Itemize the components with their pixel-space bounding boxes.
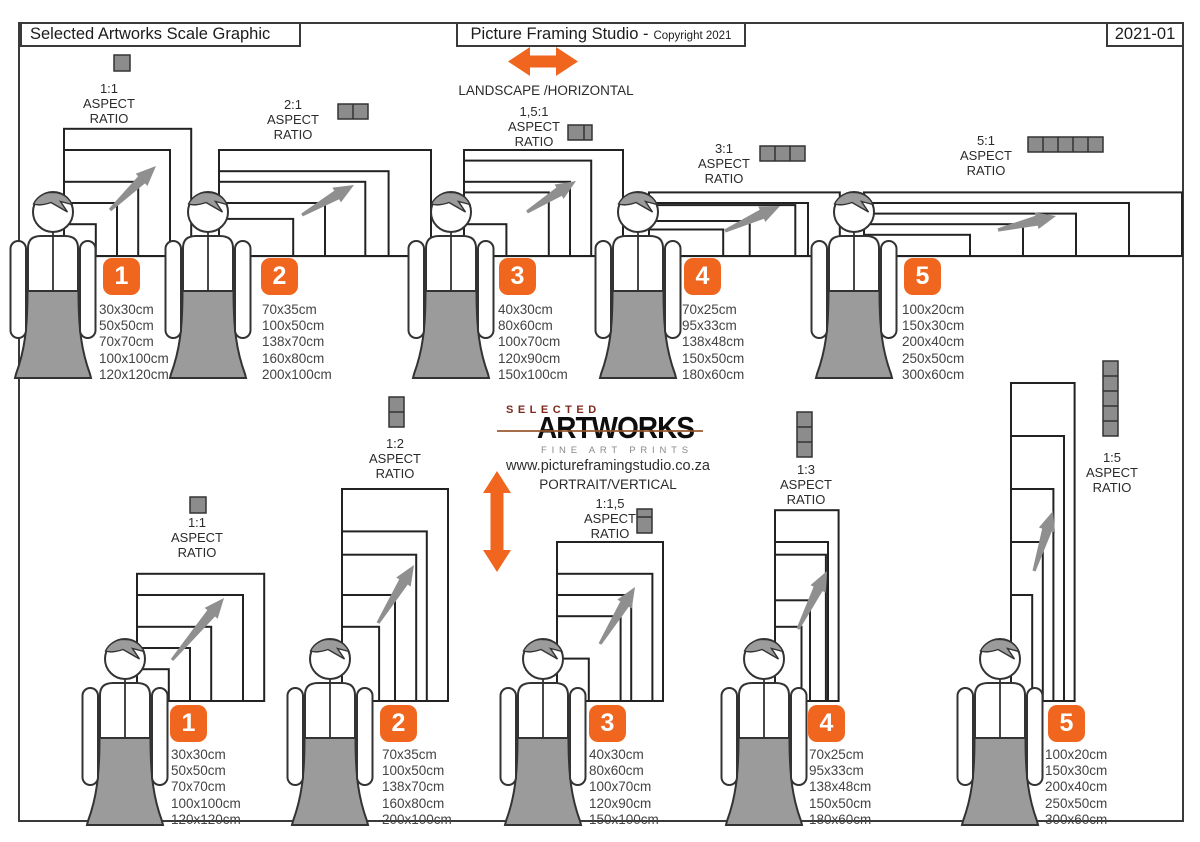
group-number-badge: 3 bbox=[589, 705, 626, 742]
size-item: 150x100cm bbox=[498, 367, 568, 383]
size-item: 138x70cm bbox=[382, 779, 452, 795]
size-item: 138x48cm bbox=[682, 334, 744, 350]
size-item: 30x30cm bbox=[99, 302, 169, 318]
size-item: 138x70cm bbox=[262, 334, 332, 350]
ratio-value: 1:5 bbox=[1052, 450, 1172, 465]
size-item: 180x60cm bbox=[809, 812, 871, 828]
horizontal-double-arrow-icon bbox=[508, 47, 578, 76]
size-item: 160x80cm bbox=[262, 351, 332, 367]
copyright-text: Copyright 2021 bbox=[653, 27, 731, 42]
size-item: 100x100cm bbox=[171, 796, 241, 812]
size-item: 250x50cm bbox=[902, 351, 964, 367]
size-item: 30x30cm bbox=[171, 747, 241, 763]
aspect-ratio-icon bbox=[114, 55, 130, 71]
logo-scratch-line bbox=[497, 430, 703, 432]
group-number-badge: 3 bbox=[499, 258, 536, 295]
size-list: 30x30cm50x50cm70x70cm100x100cm120x120cm bbox=[99, 302, 169, 383]
title-box-left: Selected Artworks Scale Graphic bbox=[20, 22, 301, 47]
group-number-badge: 4 bbox=[808, 705, 845, 742]
ratio-value: 1,5:1 bbox=[474, 104, 594, 119]
size-item: 50x50cm bbox=[171, 763, 241, 779]
title-box-right: 2021-01 bbox=[1106, 22, 1184, 47]
size-item: 250x50cm bbox=[1045, 796, 1107, 812]
ratio-value: 1:2 bbox=[335, 436, 455, 451]
size-item: 70x70cm bbox=[99, 334, 169, 350]
size-item: 50x50cm bbox=[99, 318, 169, 334]
aspect-ratio-icon bbox=[190, 497, 206, 513]
aspect-ratio-label: 1:1,5ASPECTRATIO bbox=[550, 496, 670, 541]
size-item: 120x120cm bbox=[171, 812, 241, 828]
edition-number: 2021-01 bbox=[1115, 25, 1176, 44]
aspect-ratio-icon bbox=[1103, 361, 1118, 436]
size-item: 95x33cm bbox=[682, 318, 744, 334]
ratio-value: 1:1 bbox=[49, 81, 169, 96]
website-url: www.pictureframingstudio.co.za bbox=[498, 458, 718, 474]
aspect-ratio-icon bbox=[797, 412, 812, 457]
size-item: 70x25cm bbox=[809, 747, 871, 763]
ratio-word: RATIO bbox=[335, 466, 455, 481]
vertical-double-arrow-icon bbox=[483, 471, 511, 572]
size-item: 200x100cm bbox=[262, 367, 332, 383]
size-list: 70x35cm100x50cm138x70cm160x80cm200x100cm bbox=[262, 302, 332, 383]
size-list: 30x30cm50x50cm70x70cm100x100cm120x120cm bbox=[171, 747, 241, 828]
aspect-word: ASPECT bbox=[474, 119, 594, 134]
studio-title: Picture Framing Studio - bbox=[471, 25, 649, 44]
size-item: 150x100cm bbox=[589, 812, 659, 828]
size-item: 100x20cm bbox=[902, 302, 964, 318]
size-item: 200x40cm bbox=[1045, 779, 1107, 795]
ratio-value: 2:1 bbox=[233, 97, 353, 112]
size-list: 70x35cm100x50cm138x70cm160x80cm200x100cm bbox=[382, 747, 452, 828]
size-item: 120x90cm bbox=[589, 796, 659, 812]
aspect-word: ASPECT bbox=[664, 156, 784, 171]
aspect-word: ASPECT bbox=[233, 112, 353, 127]
logo-artworks-text: ARTWORKS bbox=[537, 412, 694, 443]
size-item: 40x30cm bbox=[589, 747, 659, 763]
size-item: 70x25cm bbox=[682, 302, 744, 318]
size-item: 70x35cm bbox=[262, 302, 332, 318]
aspect-word: ASPECT bbox=[926, 148, 1046, 163]
title-box-center: Picture Framing Studio - Copyright 2021 bbox=[456, 22, 746, 47]
ratio-word: RATIO bbox=[550, 526, 670, 541]
aspect-ratio-label: 1:5ASPECTRATIO bbox=[1052, 450, 1172, 495]
size-item: 300x60cm bbox=[1045, 812, 1107, 828]
size-list: 40x30cm80x60cm100x70cm120x90cm150x100cm bbox=[589, 747, 659, 828]
ratio-word: RATIO bbox=[746, 492, 866, 507]
aspect-ratio-label: 2:1ASPECTRATIO bbox=[233, 97, 353, 142]
group-number-badge: 2 bbox=[261, 258, 298, 295]
size-item: 300x60cm bbox=[902, 367, 964, 383]
aspect-ratio-label: 5:1ASPECTRATIO bbox=[926, 133, 1046, 178]
portrait-section-label: PORTRAIT/VERTICAL bbox=[508, 477, 708, 492]
size-item: 80x60cm bbox=[498, 318, 568, 334]
size-item: 70x70cm bbox=[171, 779, 241, 795]
size-item: 100x50cm bbox=[262, 318, 332, 334]
aspect-ratio-label: 1:3ASPECTRATIO bbox=[746, 462, 866, 507]
aspect-word: ASPECT bbox=[137, 530, 257, 545]
aspect-word: ASPECT bbox=[335, 451, 455, 466]
page-title: Selected Artworks Scale Graphic bbox=[30, 25, 270, 44]
ratio-value: 1:3 bbox=[746, 462, 866, 477]
ratio-value: 3:1 bbox=[664, 141, 784, 156]
aspect-ratio-label: 1:2ASPECTRATIO bbox=[335, 436, 455, 481]
aspect-ratio-label: 3:1ASPECTRATIO bbox=[664, 141, 784, 186]
group-number-badge: 5 bbox=[1048, 705, 1085, 742]
size-item: 120x90cm bbox=[498, 351, 568, 367]
aspect-word: ASPECT bbox=[550, 511, 670, 526]
size-item: 150x50cm bbox=[809, 796, 871, 812]
size-item: 180x60cm bbox=[682, 367, 744, 383]
size-item: 200x40cm bbox=[902, 334, 964, 350]
size-item: 120x120cm bbox=[99, 367, 169, 383]
aspect-word: ASPECT bbox=[49, 96, 169, 111]
size-item: 100x70cm bbox=[498, 334, 568, 350]
group-number-badge: 5 bbox=[904, 258, 941, 295]
group-number-badge: 1 bbox=[103, 258, 140, 295]
size-item: 100x50cm bbox=[382, 763, 452, 779]
ratio-value: 1:1 bbox=[137, 515, 257, 530]
size-list: 70x25cm95x33cm138x48cm150x50cm180x60cm bbox=[682, 302, 744, 383]
size-item: 150x50cm bbox=[682, 351, 744, 367]
group-number-badge: 2 bbox=[380, 705, 417, 742]
size-item: 100x70cm bbox=[589, 779, 659, 795]
ratio-word: RATIO bbox=[664, 171, 784, 186]
ratio-value: 1:1,5 bbox=[550, 496, 670, 511]
ratio-word: RATIO bbox=[233, 127, 353, 142]
aspect-ratio-label: 1,5:1ASPECTRATIO bbox=[474, 104, 594, 149]
size-item: 150x30cm bbox=[902, 318, 964, 334]
size-item: 40x30cm bbox=[498, 302, 568, 318]
aspect-ratio-label: 1:1ASPECTRATIO bbox=[137, 515, 257, 560]
size-item: 150x30cm bbox=[1045, 763, 1107, 779]
logo-fine-art-prints-text: FINE ART PRINTS bbox=[541, 445, 693, 456]
ratio-word: RATIO bbox=[1052, 480, 1172, 495]
aspect-word: ASPECT bbox=[1052, 465, 1172, 480]
size-list: 100x20cm150x30cm200x40cm250x50cm300x60cm bbox=[1045, 747, 1107, 828]
size-list: 70x25cm95x33cm138x48cm150x50cm180x60cm bbox=[809, 747, 871, 828]
aspect-ratio-icon bbox=[389, 397, 404, 427]
aspect-word: ASPECT bbox=[746, 477, 866, 492]
size-item: 95x33cm bbox=[809, 763, 871, 779]
size-item: 160x80cm bbox=[382, 796, 452, 812]
size-item: 100x100cm bbox=[99, 351, 169, 367]
ratio-value: 5:1 bbox=[926, 133, 1046, 148]
scale-graphic-poster: Selected Artworks Scale Graphic Picture … bbox=[0, 0, 1200, 842]
aspect-ratio-label: 1:1ASPECTRATIO bbox=[49, 81, 169, 126]
frame-stack-portrait-1 bbox=[137, 574, 264, 701]
ratio-word: RATIO bbox=[926, 163, 1046, 178]
size-item: 100x20cm bbox=[1045, 747, 1107, 763]
size-list: 100x20cm150x30cm200x40cm250x50cm300x60cm bbox=[902, 302, 964, 383]
size-item: 138x48cm bbox=[809, 779, 871, 795]
ratio-word: RATIO bbox=[474, 134, 594, 149]
size-item: 200x100cm bbox=[382, 812, 452, 828]
group-number-badge: 1 bbox=[170, 705, 207, 742]
ratio-word: RATIO bbox=[137, 545, 257, 560]
size-item: 70x35cm bbox=[382, 747, 452, 763]
landscape-section-label: LANDSCAPE /HORIZONTAL bbox=[446, 83, 646, 98]
size-item: 80x60cm bbox=[589, 763, 659, 779]
ratio-word: RATIO bbox=[49, 111, 169, 126]
group-number-badge: 4 bbox=[684, 258, 721, 295]
size-list: 40x30cm80x60cm100x70cm120x90cm150x100cm bbox=[498, 302, 568, 383]
